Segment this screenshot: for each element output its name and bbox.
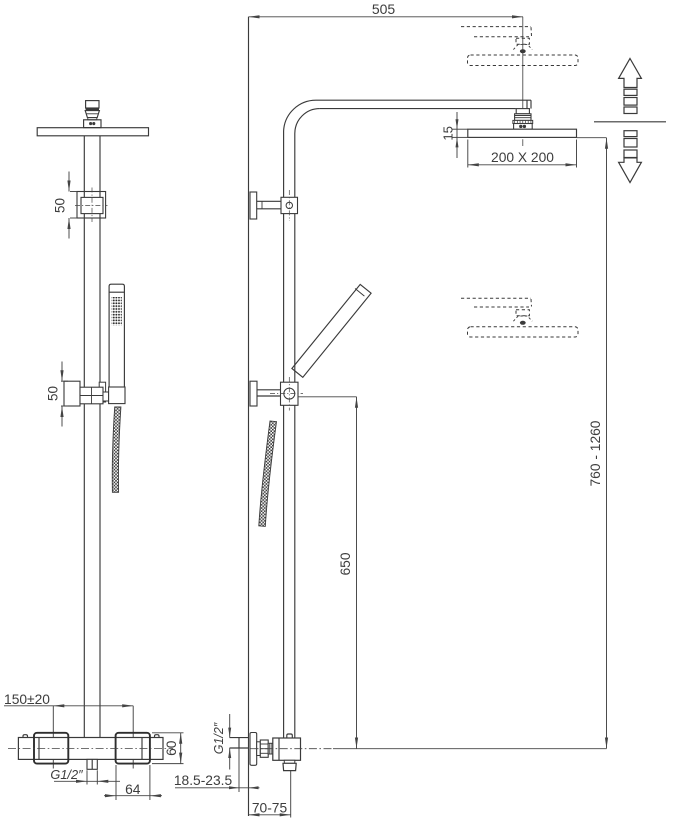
svg-text:G1/2″: G1/2″ bbox=[50, 767, 83, 782]
svg-text:60: 60 bbox=[164, 740, 179, 756]
svg-text:760 - 1260: 760 - 1260 bbox=[588, 420, 603, 486]
svg-text:G1/2″: G1/2″ bbox=[212, 722, 226, 754]
svg-text:50: 50 bbox=[53, 198, 68, 213]
svg-text:150±20: 150±20 bbox=[4, 692, 50, 707]
svg-text:18.5-23.5: 18.5-23.5 bbox=[174, 773, 233, 788]
svg-text:505: 505 bbox=[372, 1, 396, 17]
svg-text:200 X 200: 200 X 200 bbox=[491, 150, 554, 165]
svg-text:650: 650 bbox=[338, 552, 353, 575]
svg-text:64: 64 bbox=[125, 782, 141, 797]
svg-text:70-75: 70-75 bbox=[252, 801, 288, 816]
svg-text:15: 15 bbox=[441, 126, 456, 141]
svg-text:50: 50 bbox=[46, 386, 61, 401]
